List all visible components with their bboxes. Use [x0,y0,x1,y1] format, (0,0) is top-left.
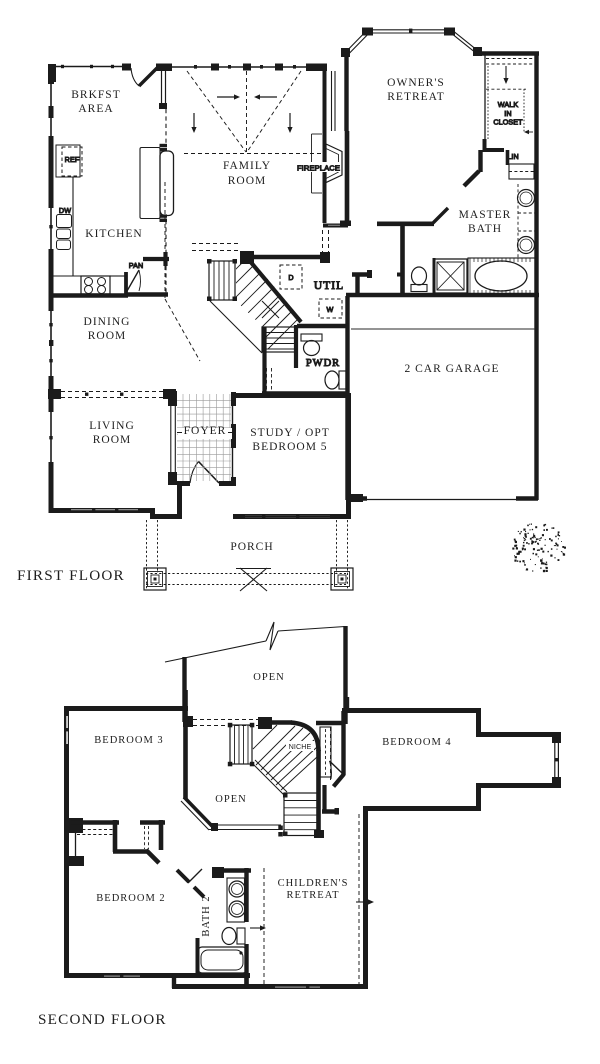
svg-text:OWNER'S: OWNER'S [387,77,445,89]
svg-text:KITCHEN: KITCHEN [85,228,142,240]
svg-text:FIRST FLOOR: FIRST FLOOR [17,567,125,584]
svg-text:BEDROOM 4: BEDROOM 4 [382,737,451,748]
svg-text:BEDROOM 2: BEDROOM 2 [96,893,165,904]
svg-text:FOYER: FOYER [184,425,227,437]
svg-text:RETREAT: RETREAT [387,91,444,103]
svg-text:W: W [327,305,334,314]
svg-text:UTIL: UTIL [314,280,344,292]
svg-text:CHILDREN'S: CHILDREN'S [278,878,349,889]
svg-text:LIVING: LIVING [89,420,135,432]
svg-text:ROOM: ROOM [88,330,127,342]
svg-text:PAN: PAN [129,261,144,270]
svg-text:REF: REF [65,155,80,164]
svg-text:2 CAR GARAGE: 2 CAR GARAGE [404,363,499,375]
svg-text:BATH 2: BATH 2 [201,895,212,936]
svg-text:BATH: BATH [468,223,502,235]
svg-text:STUDY / OPT: STUDY / OPT [250,427,330,439]
svg-text:WALK: WALK [498,100,519,109]
svg-text:PORCH: PORCH [230,541,273,553]
svg-text:CLOSET: CLOSET [493,118,523,127]
svg-text:BRKFST: BRKFST [71,89,120,101]
svg-text:FIREPLACE: FIREPLACE [297,164,340,173]
svg-text:OPEN: OPEN [253,672,284,683]
svg-text:FAMILY: FAMILY [223,160,271,172]
svg-text:RETREAT: RETREAT [286,890,339,901]
svg-text:AREA: AREA [78,103,113,115]
svg-text:OPEN: OPEN [215,794,246,805]
svg-text:NICHE: NICHE [289,742,312,751]
svg-text:BEDROOM 5: BEDROOM 5 [252,441,327,453]
svg-text:MASTER: MASTER [459,209,512,221]
svg-text:SECOND FLOOR: SECOND FLOOR [38,1011,167,1028]
svg-text:DW: DW [59,206,71,215]
svg-text:DINING: DINING [84,316,131,328]
svg-text:ROOM: ROOM [228,175,267,187]
svg-text:D: D [288,273,293,282]
svg-text:ROOM: ROOM [93,434,132,446]
svg-text:PWDR: PWDR [306,358,340,369]
svg-text:BEDROOM 3: BEDROOM 3 [94,735,163,746]
